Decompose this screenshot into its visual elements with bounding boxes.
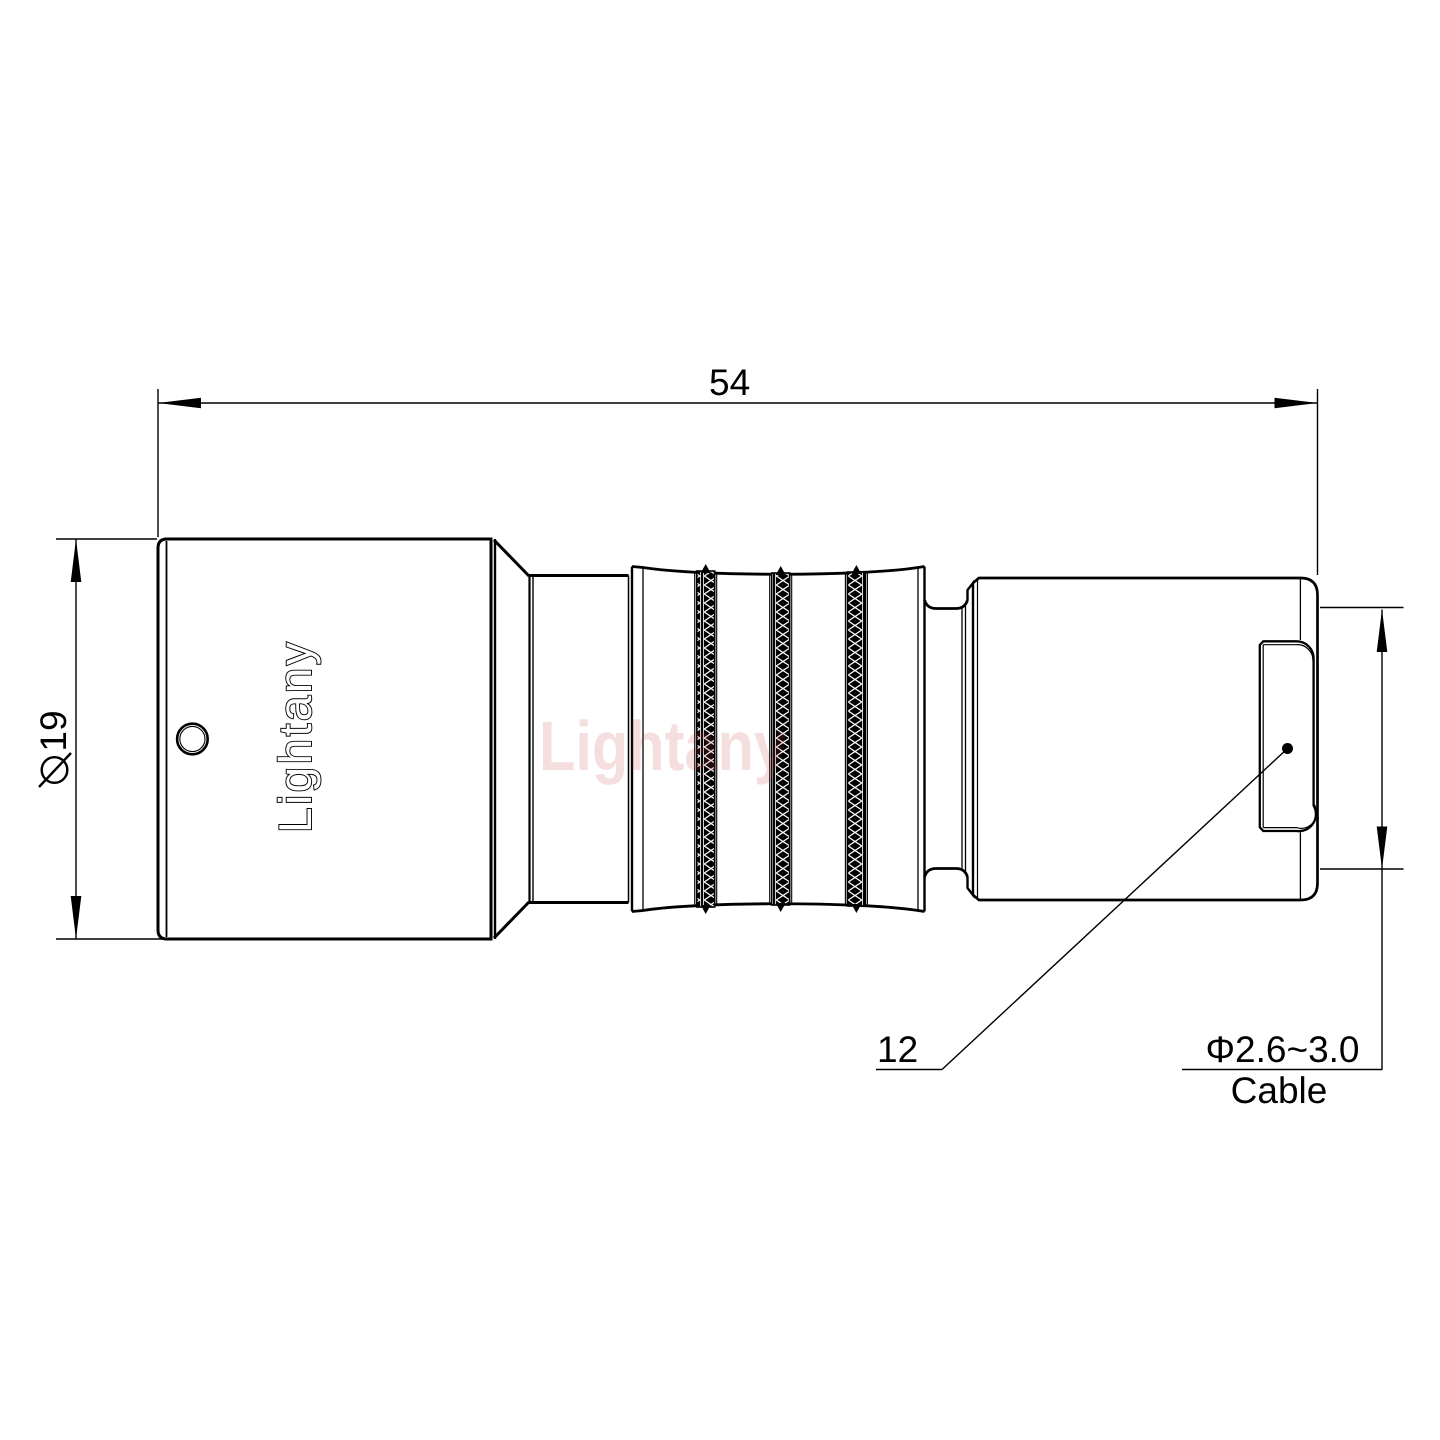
svg-text:Lightany: Lightany — [269, 640, 321, 833]
svg-text:19: 19 — [33, 710, 74, 751]
svg-text:12: 12 — [877, 1029, 918, 1070]
svg-text:Cable: Cable — [1231, 1070, 1328, 1111]
svg-text:Φ2.6~3.0: Φ2.6~3.0 — [1206, 1029, 1360, 1070]
svg-text:54: 54 — [709, 362, 750, 403]
svg-text:Lightany: Lightany — [539, 707, 787, 785]
